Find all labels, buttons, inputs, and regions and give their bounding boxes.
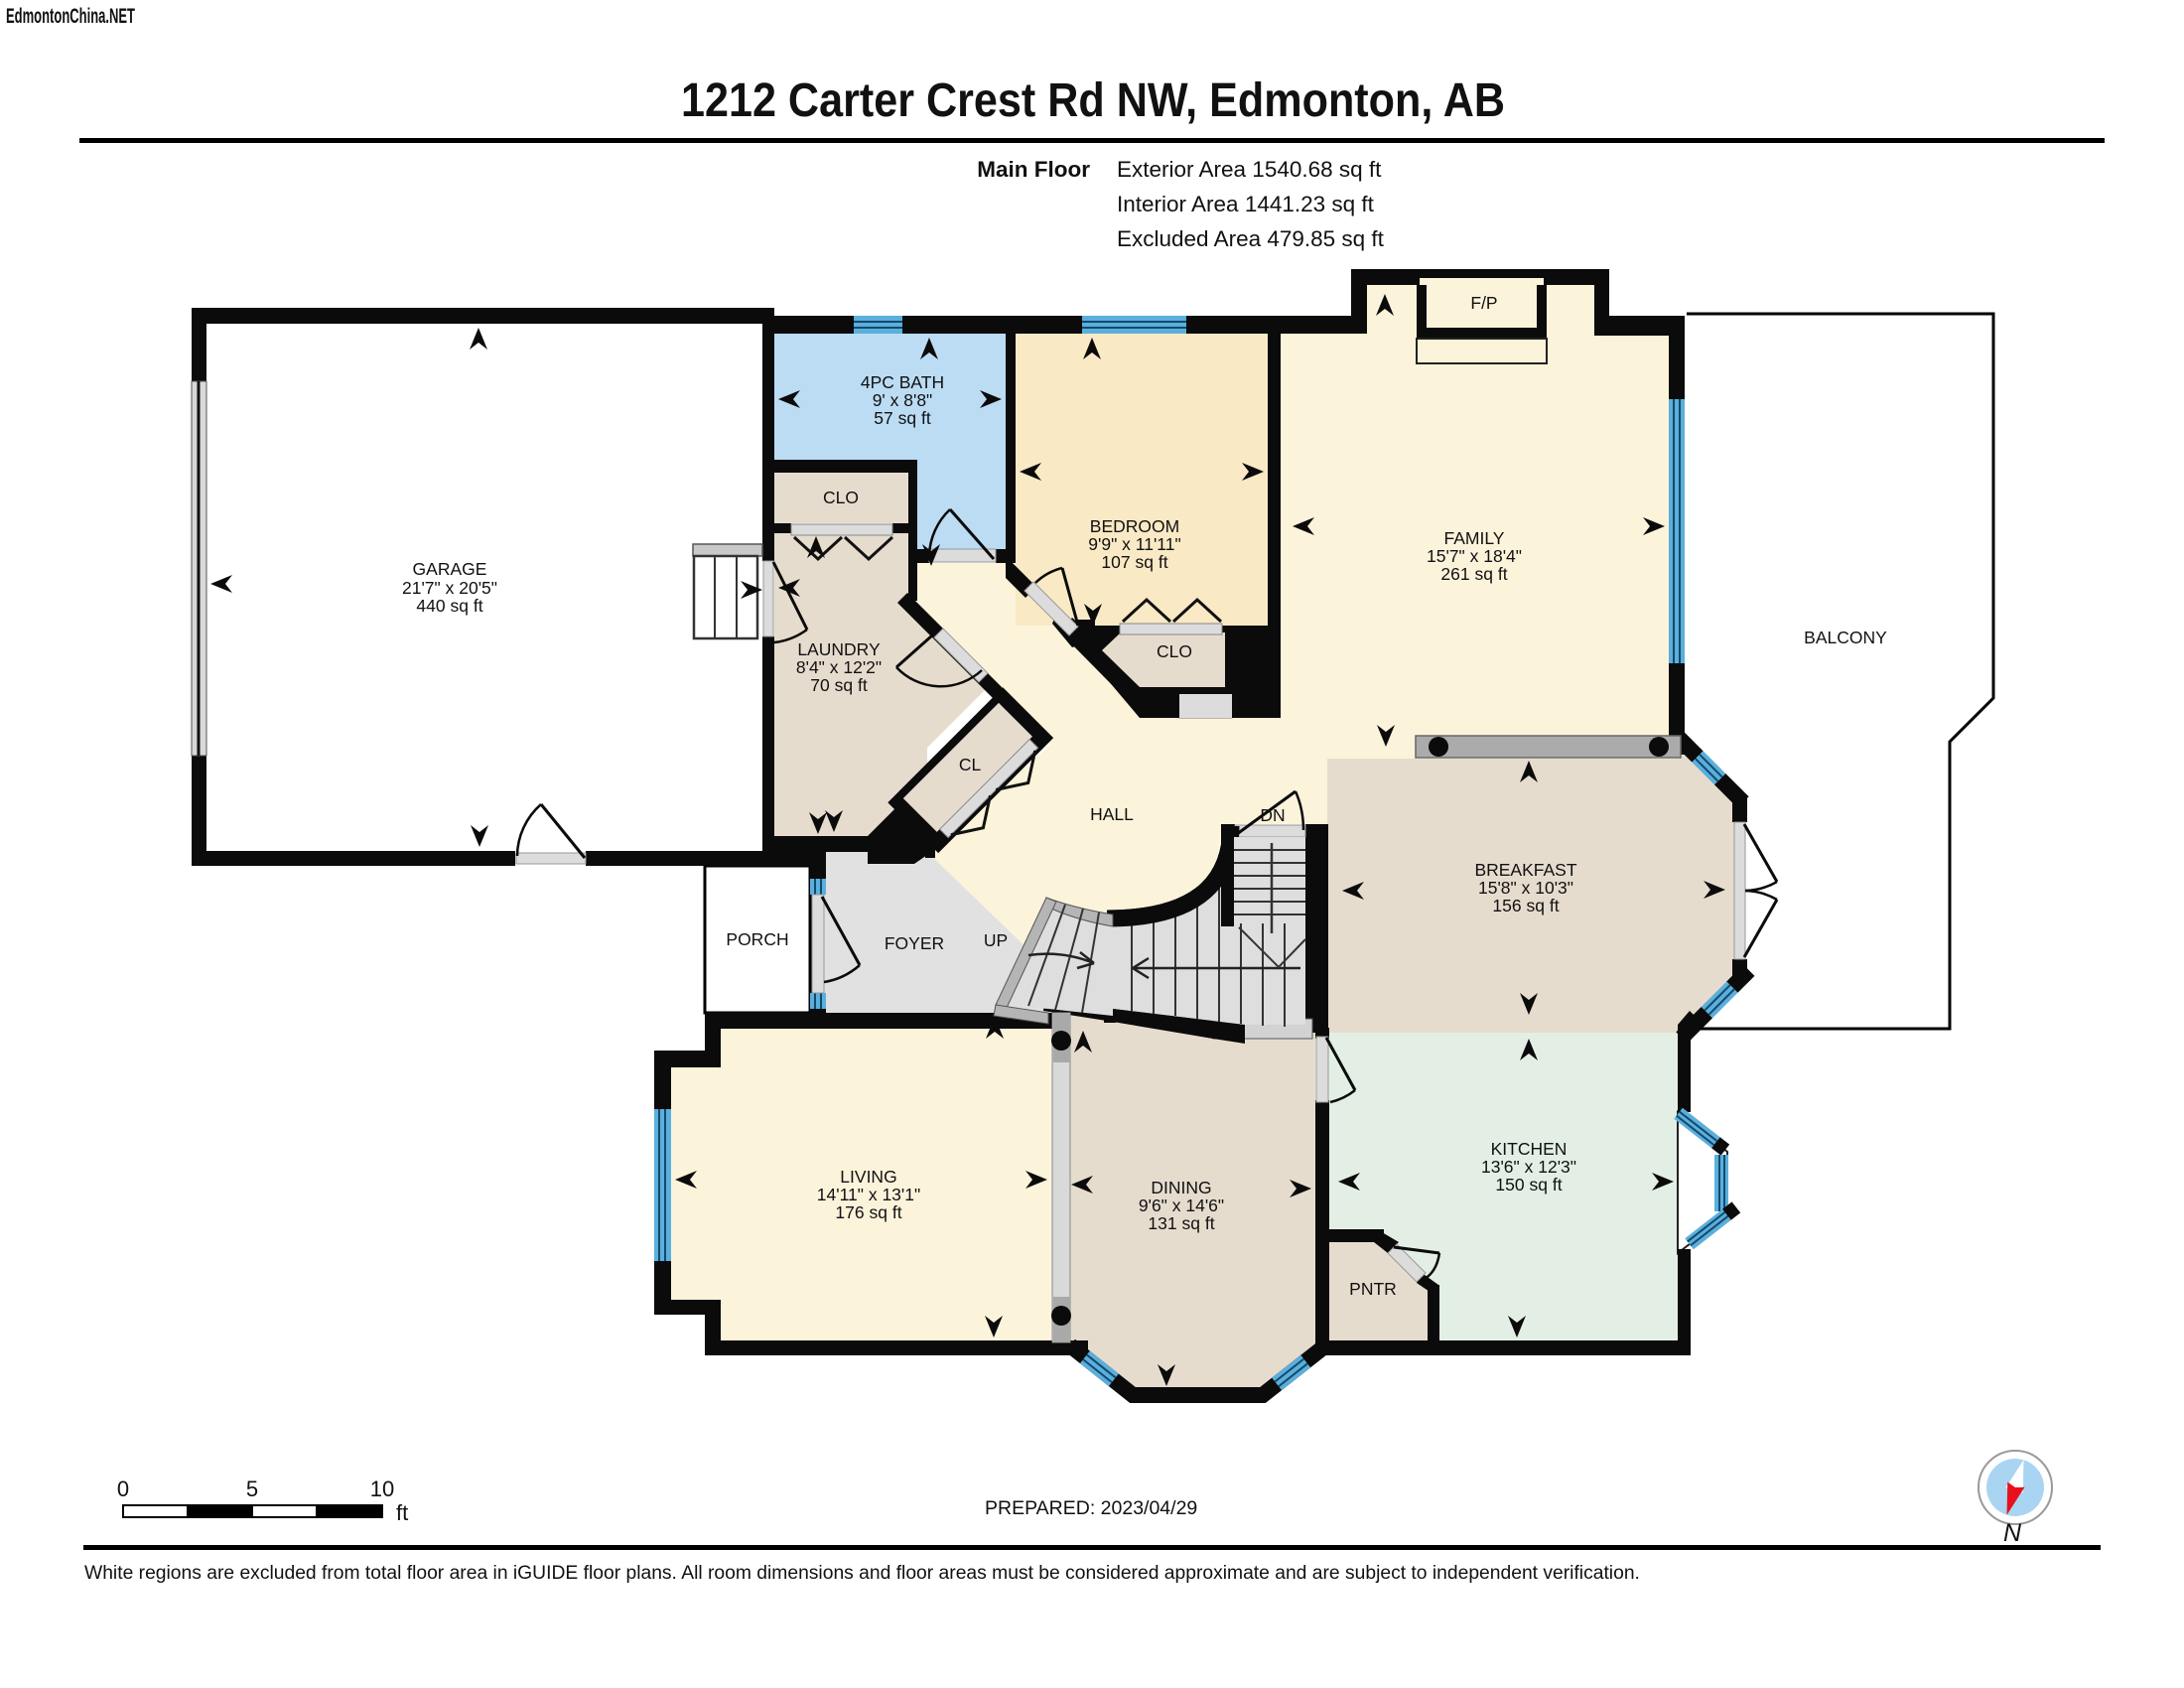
svg-text:GARAGE: GARAGE — [413, 559, 487, 579]
svg-text:10: 10 — [370, 1477, 394, 1501]
svg-text:White regions are excluded fro: White regions are excluded from total fl… — [84, 1563, 1640, 1584]
svg-text:BALCONY: BALCONY — [1804, 628, 1887, 647]
svg-text:N: N — [2003, 1519, 2022, 1547]
svg-text:BEDROOM: BEDROOM — [1090, 516, 1179, 536]
svg-text:F/P: F/P — [1470, 293, 1497, 313]
svg-text:Interior Area 1441.23 sq ft: Interior Area 1441.23 sq ft — [1117, 192, 1375, 216]
svg-text:150 sq ft: 150 sq ft — [1495, 1175, 1562, 1195]
svg-text:261 sq ft: 261 sq ft — [1440, 564, 1507, 584]
svg-text:ft: ft — [396, 1500, 408, 1525]
svg-text:9'6" x 14'6": 9'6" x 14'6" — [1139, 1196, 1224, 1215]
svg-text:LIVING: LIVING — [840, 1167, 896, 1187]
svg-text:LAUNDRY: LAUNDRY — [797, 639, 881, 659]
svg-text:Exterior Area 1540.68 sq ft: Exterior Area 1540.68 sq ft — [1117, 157, 1382, 182]
svg-text:CL: CL — [959, 755, 982, 774]
svg-text:FAMILY: FAMILY — [1444, 528, 1505, 548]
svg-text:KITCHEN: KITCHEN — [1491, 1139, 1568, 1159]
svg-text:Excluded Area 479.85 sq ft: Excluded Area 479.85 sq ft — [1117, 226, 1385, 251]
svg-text:70 sq ft: 70 sq ft — [810, 675, 868, 695]
svg-text:5: 5 — [246, 1477, 258, 1501]
svg-text:CLO: CLO — [1157, 641, 1192, 661]
svg-text:107 sq ft: 107 sq ft — [1101, 552, 1167, 572]
svg-text:EdmontonChina.NET: EdmontonChina.NET — [6, 5, 135, 28]
svg-text:CLO: CLO — [823, 488, 859, 507]
svg-text:PREPARED: 2023/04/29: PREPARED: 2023/04/29 — [985, 1497, 1197, 1519]
svg-text:9'9" x 11'11": 9'9" x 11'11" — [1088, 534, 1180, 554]
svg-text:156 sq ft: 156 sq ft — [1492, 896, 1559, 915]
svg-text:4PC BATH: 4PC BATH — [861, 372, 944, 392]
svg-text:1212 Carter Crest Rd NW, Edmon: 1212 Carter Crest Rd NW, Edmonton, AB — [681, 74, 1505, 127]
svg-text:131 sq ft: 131 sq ft — [1148, 1213, 1214, 1233]
svg-text:0: 0 — [117, 1477, 129, 1501]
svg-text:21'7" x 20'5": 21'7" x 20'5" — [402, 578, 497, 598]
svg-text:PNTR: PNTR — [1349, 1279, 1397, 1299]
svg-text:15'7" x 18'4": 15'7" x 18'4" — [1427, 546, 1522, 566]
svg-text:PORCH: PORCH — [726, 929, 788, 949]
svg-text:15'8" x 10'3": 15'8" x 10'3" — [1478, 878, 1573, 898]
svg-text:57 sq ft: 57 sq ft — [874, 408, 931, 428]
svg-text:Main Floor: Main Floor — [977, 157, 1090, 182]
svg-text:HALL: HALL — [1090, 804, 1134, 824]
svg-text:BREAKFAST: BREAKFAST — [1474, 860, 1576, 880]
svg-text:UP: UP — [984, 930, 1008, 950]
svg-text:14'11" x 13'1": 14'11" x 13'1" — [817, 1185, 920, 1204]
svg-text:FOYER: FOYER — [885, 933, 944, 953]
svg-text:DN: DN — [1260, 805, 1285, 825]
svg-text:9' x 8'8": 9' x 8'8" — [873, 390, 933, 410]
svg-text:8'4" x 12'2": 8'4" x 12'2" — [796, 657, 882, 677]
svg-text:13'6" x 12'3": 13'6" x 12'3" — [1481, 1157, 1576, 1177]
svg-text:DINING: DINING — [1151, 1178, 1211, 1197]
svg-text:176 sq ft: 176 sq ft — [835, 1202, 901, 1222]
svg-text:440 sq ft: 440 sq ft — [416, 596, 482, 616]
